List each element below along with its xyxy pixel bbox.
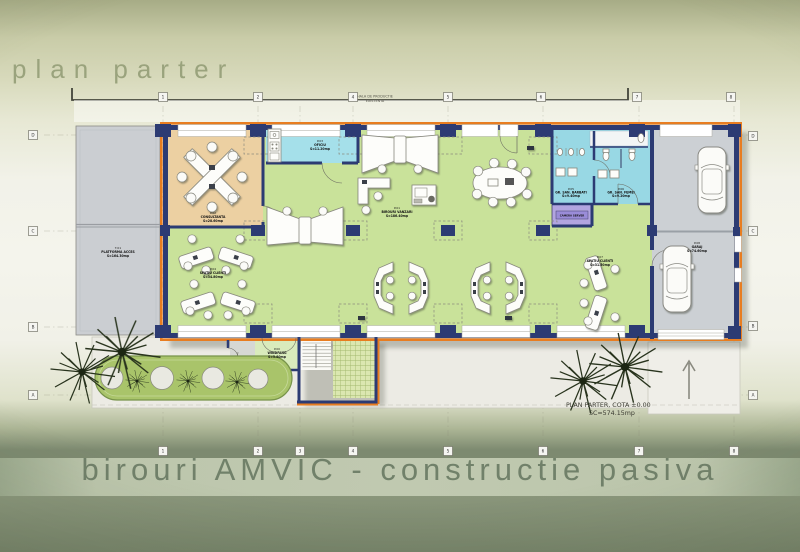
svg-text:S=11.20mp: S=11.20mp — [310, 147, 331, 151]
plan-caption: PLAN PARTER, COTA ±0.00 — [566, 402, 651, 409]
grid-bubble: 4 — [349, 447, 358, 456]
svg-text:6: 6 — [540, 95, 543, 100]
svg-text:2: 2 — [257, 95, 260, 100]
grid-bubble: 5 — [444, 93, 453, 102]
access-platform: T.01 PLATFORMA ACCES S=164.30mp — [76, 126, 160, 335]
svg-text:3: 3 — [299, 449, 302, 454]
svg-text:1: 1 — [162, 95, 165, 100]
car-icon — [660, 246, 694, 312]
grid-bubble: 8 — [730, 447, 739, 456]
drawing-sheet: plan parter birouri AMVIC - constructie … — [0, 0, 800, 552]
driveway-apron — [648, 342, 740, 414]
svg-text:S=31.50mp: S=31.50mp — [590, 263, 611, 267]
grid-bubble: A — [749, 391, 758, 400]
svg-text:1: 1 — [162, 449, 165, 454]
garage-south-door — [658, 330, 724, 340]
grid-bubble: 3 — [296, 447, 305, 456]
svg-text:4: 4 — [352, 95, 355, 100]
grid-bubble: 1 — [159, 447, 168, 456]
grid-bubble: 6 — [539, 447, 548, 456]
grid-bubble: C — [29, 227, 38, 236]
svg-text:8: 8 — [733, 449, 736, 454]
grid-bubble: 8 — [727, 93, 736, 102]
grid-bubble: 2 — [254, 447, 263, 456]
grid-bubble: 4 — [349, 93, 358, 102]
svg-text:S=28.60mp: S=28.60mp — [203, 219, 224, 223]
floor-outlet — [505, 316, 512, 320]
canopy-strip — [74, 100, 740, 122]
car-icon — [695, 147, 729, 213]
svg-text:S=186.40mp: S=186.40mp — [386, 214, 409, 218]
floor-outlet — [358, 316, 365, 320]
grid-bubble: B — [29, 323, 38, 332]
grid-bubble: 7 — [635, 447, 644, 456]
svg-text:2: 2 — [257, 449, 260, 454]
floor-outlet — [527, 146, 534, 150]
floor-plan-canvas: HALA DE PRODUCTIE EXISTENTA T.01 PLATFOR… — [0, 0, 800, 552]
svg-text:A: A — [752, 393, 755, 398]
svg-text:7: 7 — [638, 449, 641, 454]
svg-text:7: 7 — [636, 95, 639, 100]
svg-text:D: D — [31, 133, 34, 138]
hall-label: HALA DE PRODUCTIE — [357, 95, 393, 99]
svg-text:5: 5 — [447, 95, 450, 100]
svg-text:S=9.40mp: S=9.40mp — [562, 194, 581, 198]
svg-text:S=34.80mp: S=34.80mp — [203, 275, 224, 279]
grid-bubble: C — [749, 227, 758, 236]
svg-text:CAMERA SERVER: CAMERA SERVER — [560, 214, 585, 218]
svg-text:4: 4 — [352, 449, 355, 454]
svg-text:C: C — [32, 229, 35, 234]
grid-bubble: D — [29, 131, 38, 140]
grid-bubble: 1 — [159, 93, 168, 102]
svg-text:SC=574.15mp: SC=574.15mp — [589, 410, 635, 417]
svg-text:D: D — [751, 134, 754, 139]
grid-bubble: B — [749, 322, 758, 331]
svg-text:S=5.80mp: S=5.80mp — [268, 355, 287, 359]
svg-text:6: 6 — [542, 449, 545, 454]
svg-text:S=74.60mp: S=74.60mp — [687, 249, 708, 253]
grid-bubble: A — [29, 391, 38, 400]
svg-text:8: 8 — [730, 95, 733, 100]
svg-text:S=9.20mp: S=9.20mp — [612, 194, 631, 198]
grid-bubble: 5 — [444, 447, 453, 456]
grid-bubble: 6 — [537, 93, 546, 102]
garage-north-door — [660, 125, 712, 137]
svg-text:B: B — [32, 325, 35, 330]
grid-bubble: 2 — [254, 93, 263, 102]
svg-text:5: 5 — [447, 449, 450, 454]
svg-text:EXISTENTA: EXISTENTA — [366, 99, 385, 103]
svg-text:S=164.30mp: S=164.30mp — [107, 254, 130, 258]
grid-bubble: D — [749, 132, 758, 141]
copier — [412, 185, 436, 205]
svg-text:C: C — [752, 229, 755, 234]
windows-south — [178, 326, 625, 338]
grid-bubble: 7 — [633, 93, 642, 102]
svg-text:A: A — [32, 393, 35, 398]
kitchen-counter — [268, 129, 281, 162]
svg-text:B: B — [752, 324, 755, 329]
